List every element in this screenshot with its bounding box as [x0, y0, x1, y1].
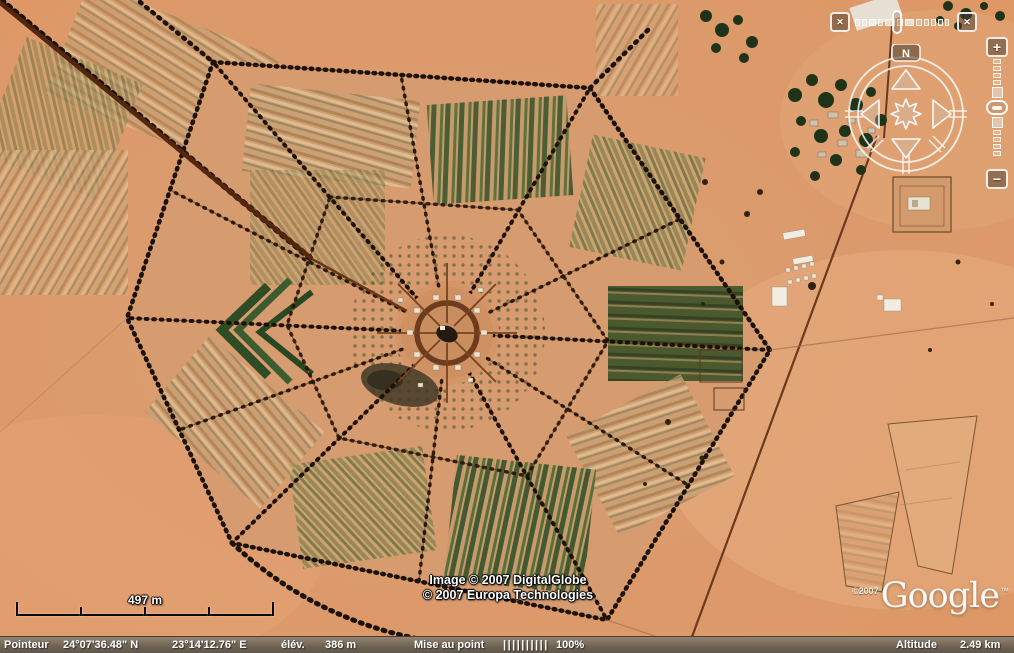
minus-icon: −: [993, 172, 1001, 186]
central-village: [377, 263, 517, 403]
zoom-slider-thumb[interactable]: [986, 100, 1008, 115]
scale-bar-tick: [208, 607, 210, 616]
pan-down-arrow[interactable]: [892, 139, 920, 158]
pan-left-arrow[interactable]: [861, 100, 879, 128]
compass-joystick[interactable]: [891, 99, 921, 129]
scale-bar-tick: [144, 607, 146, 616]
google-watermark: ©2007 Google ™: [852, 578, 1009, 614]
scale-bar-tick: [272, 602, 274, 616]
imagery-attribution: Image © 2007 DigitalGlobe © 2007 Europa …: [385, 573, 631, 603]
scale-bar: 497 m: [16, 593, 276, 620]
time-slider-thumb[interactable]: [892, 10, 902, 34]
zoom-slider-track[interactable]: [983, 59, 1011, 167]
pan-right-arrow[interactable]: [933, 100, 951, 128]
altitude-value: 2.49 km: [960, 639, 1000, 651]
streaming-label: Mise au point: [414, 639, 484, 651]
time-slider-track[interactable]: [855, 18, 954, 27]
logo-copyright: ©2007: [852, 586, 879, 596]
pointer-longitude: 23°14'12.76" E: [172, 639, 247, 651]
time-slider-left-button[interactable]: ✕: [830, 12, 850, 32]
map-viewport: ✕ ✕ N: [0, 0, 1014, 653]
scale-label: 497 m: [16, 593, 274, 607]
status-bar: Pointeur 24°07'36.48" N 23°14'12.76" E é…: [0, 636, 1014, 653]
elevation-label: élév.: [281, 639, 305, 651]
cross-icon: ✕: [836, 17, 844, 28]
plus-icon: +: [993, 40, 1001, 54]
time-slider: ✕ ✕: [830, 10, 980, 36]
scale-bar-tick: [80, 607, 82, 616]
zoom-slider: + −: [983, 37, 1011, 189]
north-button[interactable]: N: [892, 44, 920, 61]
streaming-progress-bars: ||||||||||: [503, 639, 549, 651]
time-slider-right-button[interactable]: ✕: [957, 12, 977, 32]
zoom-in-button[interactable]: +: [986, 37, 1008, 57]
pointer-label: Pointeur: [4, 639, 49, 651]
compass-navigator: N: [843, 44, 969, 184]
zoom-out-button[interactable]: −: [986, 169, 1008, 189]
north-label: N: [902, 48, 910, 60]
altitude-label: Altitude: [896, 639, 937, 651]
attribution-line2: © 2007 Europa Technologies: [385, 588, 631, 603]
elevation-value: 386 m: [325, 639, 356, 651]
cross-icon: ✕: [963, 17, 971, 28]
scale-bar-tick: [16, 602, 18, 616]
pan-up-arrow[interactable]: [892, 70, 920, 89]
streaming-percent: 100%: [556, 639, 584, 651]
trademark-symbol: ™: [1000, 586, 1009, 596]
attribution-line1: Image © 2007 DigitalGlobe: [385, 573, 631, 588]
google-logo-text: Google: [881, 578, 999, 614]
pointer-latitude: 24°07'36.48" N: [63, 639, 138, 651]
